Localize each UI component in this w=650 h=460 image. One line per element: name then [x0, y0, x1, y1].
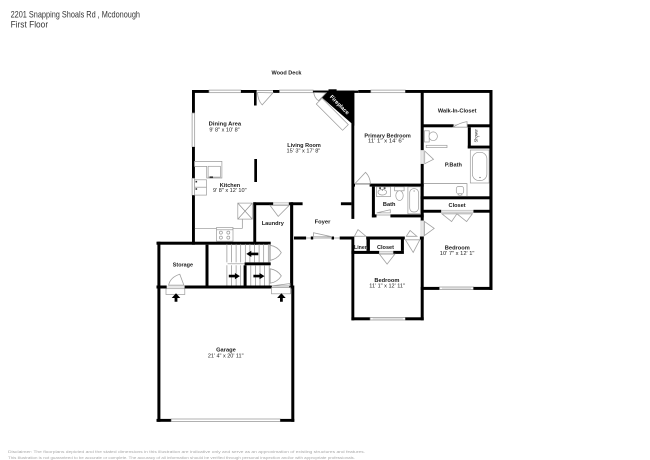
svg-text:9' 8" x 10' 8": 9' 8" x 10' 8": [209, 127, 240, 133]
svg-text:Wood Deck: Wood Deck: [272, 71, 303, 77]
svg-text:9' 8" x 12' 10": 9' 8" x 12' 10": [213, 188, 247, 194]
svg-text:P.Bath: P.Bath: [445, 163, 463, 169]
svg-text:21' 4" x 20' 11": 21' 4" x 20' 11": [208, 354, 244, 360]
svg-text:Closet: Closet: [449, 203, 466, 209]
svg-text:Bath: Bath: [383, 202, 396, 208]
svg-text:This illustration is not guara: This illustration is not guaranteed to b…: [8, 456, 355, 460]
svg-text:Disclaimer: The floorplans dep: Disclaimer: The floorplans depicted and …: [8, 450, 365, 454]
svg-text:11' 1" x 12' 11": 11' 1" x 12' 11": [369, 284, 405, 290]
svg-text:Closet: Closet: [377, 245, 394, 251]
svg-text:First Floor: First Floor: [11, 20, 49, 30]
svg-text:Walk-In-Closet: Walk-In-Closet: [438, 108, 477, 114]
svg-text:10' 7" x 12' 1": 10' 7" x 12' 1": [440, 251, 475, 257]
svg-text:Shower: Shower: [474, 129, 479, 143]
svg-text:Foyer: Foyer: [315, 220, 332, 226]
svg-text:15' 3" x 17' 8": 15' 3" x 17' 8": [287, 149, 321, 155]
svg-text:11' 1" x 14' 6": 11' 1" x 14' 6": [368, 139, 404, 145]
svg-text:2201 Snapping Shoals Rd , Mcdo: 2201 Snapping Shoals Rd , Mcdonough: [11, 9, 140, 19]
svg-text:Storage: Storage: [173, 263, 193, 269]
svg-text:Laundry: Laundry: [262, 221, 285, 227]
svg-text:Linen: Linen: [354, 245, 369, 251]
